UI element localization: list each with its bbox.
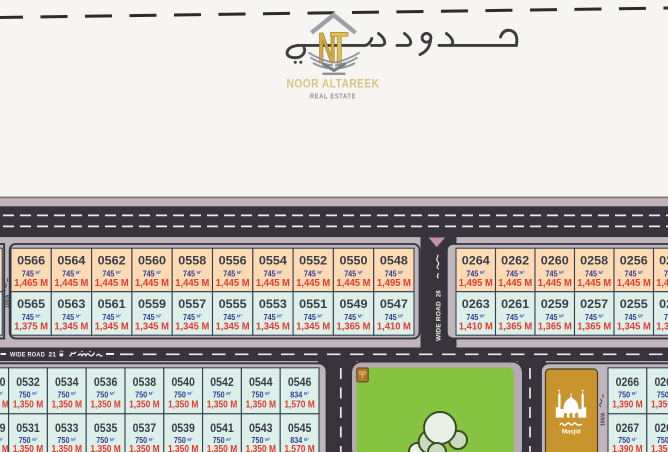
svg-text:0256: 0256	[620, 255, 648, 267]
svg-text:1,345 M: 1,345 M	[95, 321, 129, 332]
svg-text:0562: 0562	[98, 255, 126, 267]
svg-text:0565: 0565	[17, 299, 46, 311]
svg-text:0563: 0563	[57, 299, 85, 311]
svg-text:0554: 0554	[259, 255, 288, 267]
svg-text:0542: 0542	[210, 377, 234, 389]
svg-text:0543: 0543	[249, 423, 273, 435]
svg-text:1,445 M: 1,445 M	[337, 278, 371, 289]
svg-text:0544: 0544	[249, 377, 273, 389]
svg-text:M²: M²	[0, 437, 4, 442]
svg-text:0261: 0261	[501, 299, 530, 311]
svg-text:1,465 M: 1,465 M	[14, 278, 48, 289]
svg-text:0538: 0538	[133, 377, 157, 389]
svg-text:1,375 M: 1,375 M	[14, 321, 48, 332]
svg-text:0262: 0262	[501, 255, 529, 267]
svg-text:M²: M²	[559, 314, 565, 319]
svg-text:0545: 0545	[288, 423, 312, 435]
svg-text:WIDE ROAD: WIDE ROAD	[437, 301, 443, 341]
svg-text:0531: 0531	[16, 423, 40, 435]
svg-text:0558: 0558	[178, 255, 207, 267]
svg-text:0549: 0549	[340, 299, 368, 311]
svg-text:M²: M²	[116, 314, 122, 319]
svg-text:M²: M²	[0, 391, 4, 396]
svg-text:1,345 M: 1,345 M	[256, 321, 290, 332]
svg-text:0267: 0267	[616, 423, 640, 435]
svg-text:0537: 0537	[133, 423, 157, 435]
svg-text:0532: 0532	[16, 377, 40, 389]
svg-text:M²: M²	[32, 437, 38, 442]
svg-text:1,365 M: 1,365 M	[498, 321, 532, 332]
svg-text:0546: 0546	[288, 377, 312, 389]
svg-text:M²: M²	[149, 437, 155, 442]
svg-text:1,445 M: 1,445 M	[95, 278, 129, 289]
svg-text:1,350 M: 1,350 M	[651, 399, 668, 410]
svg-text:1,345 M: 1,345 M	[617, 321, 651, 332]
svg-text:0560: 0560	[138, 255, 166, 267]
svg-text:M²: M²	[237, 270, 243, 275]
svg-text:M²: M²	[35, 314, 41, 319]
svg-text:M²: M²	[197, 270, 203, 275]
svg-text:M²: M²	[520, 270, 526, 275]
svg-text:M²: M²	[156, 270, 162, 275]
svg-text:M²: M²	[116, 270, 122, 275]
svg-text:1,350 M: 1,350 M	[13, 399, 44, 410]
svg-text:1,445 M: 1,445 M	[656, 278, 668, 289]
svg-text:M²: M²	[156, 314, 162, 319]
svg-text:0555: 0555	[219, 299, 248, 311]
svg-text:1,495 M: 1,495 M	[377, 278, 411, 289]
svg-text:0559: 0559	[138, 299, 166, 311]
svg-text:1,390 M: 1,390 M	[612, 444, 643, 452]
svg-text:1,350 M: 1,350 M	[13, 444, 44, 452]
svg-text:M²: M²	[358, 314, 364, 319]
svg-text:M²: M²	[110, 437, 116, 442]
svg-text:1,345 M: 1,345 M	[135, 321, 169, 332]
svg-text:M²: M²	[632, 437, 638, 442]
svg-text:M²: M²	[398, 270, 404, 275]
svg-text:M²: M²	[317, 314, 323, 319]
svg-text:M²: M²	[265, 437, 271, 442]
svg-text:0553: 0553	[259, 299, 287, 311]
svg-text:750: 750	[96, 391, 109, 400]
svg-text:M²: M²	[265, 391, 271, 396]
svg-text:750: 750	[213, 391, 226, 400]
svg-text:M²: M²	[76, 314, 82, 319]
svg-text:M²: M²	[237, 314, 243, 319]
svg-text:1,445 M: 1,445 M	[617, 278, 651, 289]
svg-text:M²: M²	[110, 391, 116, 396]
svg-text:Masjid: Masjid	[562, 430, 581, 436]
svg-text:M²: M²	[71, 391, 77, 396]
svg-text:M²: M²	[71, 437, 77, 442]
svg-text:M²: M²	[76, 270, 82, 275]
svg-text:M²: M²	[480, 270, 486, 275]
svg-text:M²: M²	[187, 437, 193, 442]
svg-text:1,570 M: 1,570 M	[284, 399, 315, 410]
svg-text:0257: 0257	[580, 299, 608, 311]
svg-text:0540: 0540	[171, 377, 195, 389]
svg-text:M²: M²	[638, 314, 644, 319]
svg-text:1,350 M: 1,350 M	[90, 399, 121, 410]
svg-text:0253: 0253	[659, 299, 668, 311]
svg-text:0533: 0533	[55, 423, 79, 435]
svg-text:1,570 M: 1,570 M	[284, 444, 315, 452]
svg-text:0269: 0269	[654, 423, 668, 435]
svg-text:0536: 0536	[94, 377, 118, 389]
svg-text:1,350 M: 1,350 M	[207, 399, 238, 410]
svg-text:1,365 M: 1,365 M	[538, 321, 572, 332]
svg-text:0534: 0534	[55, 377, 79, 389]
svg-text:M²: M²	[599, 314, 605, 319]
svg-text:1,345 M: 1,345 M	[656, 321, 668, 332]
svg-text:M²: M²	[304, 437, 310, 442]
svg-text:0552: 0552	[299, 255, 327, 267]
svg-text:NOOR ALTAREEK: NOOR ALTAREEK	[287, 79, 380, 91]
svg-text:1,350 M: 1,350 M	[90, 444, 121, 452]
svg-text:0264: 0264	[462, 255, 491, 267]
svg-text:1,445 M: 1,445 M	[216, 278, 250, 289]
svg-text:M²: M²	[480, 314, 486, 319]
svg-text:0268: 0268	[654, 377, 668, 389]
svg-text:750: 750	[58, 391, 71, 400]
svg-text:WIDE ROAD: WIDE ROAD	[10, 351, 45, 358]
svg-text:M²: M²	[520, 314, 526, 319]
svg-text:750: 750	[657, 391, 668, 400]
svg-text:1,350 M: 1,350 M	[246, 399, 277, 410]
svg-text:M²: M²	[317, 270, 323, 275]
svg-text:1,345 M: 1,345 M	[296, 321, 330, 332]
svg-text:750: 750	[174, 391, 187, 400]
svg-text:M²: M²	[277, 270, 283, 275]
svg-text:1,350 M: 1,350 M	[207, 444, 238, 452]
svg-text:750: 750	[252, 391, 265, 400]
svg-text:1,350 M: 1,350 M	[129, 444, 160, 452]
svg-text:0266: 0266	[616, 377, 640, 389]
svg-text:1,350 M: 1,350 M	[52, 444, 83, 452]
svg-text:1,410 M: 1,410 M	[459, 321, 493, 332]
svg-text:0255: 0255	[620, 299, 649, 311]
svg-text:1,365 M: 1,365 M	[337, 321, 371, 332]
svg-text:0557: 0557	[178, 299, 206, 311]
svg-text:100/A: 100/A	[5, 294, 11, 308]
svg-text:0556: 0556	[219, 255, 247, 267]
svg-text:M²: M²	[35, 270, 41, 275]
svg-text:750: 750	[618, 391, 631, 400]
svg-text:1,350 M: 1,350 M	[129, 399, 160, 410]
svg-text:1,350 M: 1,350 M	[168, 444, 199, 452]
svg-text:1,445 M: 1,445 M	[135, 278, 169, 289]
svg-text:1,445 M: 1,445 M	[577, 278, 611, 289]
svg-text:1,345 M: 1,345 M	[175, 321, 209, 332]
svg-text:1,445 M: 1,445 M	[54, 278, 88, 289]
svg-text:0254: 0254	[659, 255, 668, 267]
svg-text:26: 26	[437, 290, 443, 297]
svg-text:M²: M²	[149, 391, 155, 396]
svg-text:M²: M²	[197, 314, 203, 319]
svg-text:1,345 M: 1,345 M	[216, 321, 250, 332]
svg-text:1,350 M: 1,350 M	[246, 444, 277, 452]
svg-text:100/A: 100/A	[601, 412, 607, 426]
svg-text:0551: 0551	[299, 299, 328, 311]
svg-text:750: 750	[19, 391, 32, 400]
svg-text:0561: 0561	[98, 299, 127, 311]
svg-text:1,350 M: 1,350 M	[651, 444, 668, 452]
svg-text:1,445 M: 1,445 M	[538, 278, 572, 289]
svg-text:0539: 0539	[171, 423, 195, 435]
svg-text:M²: M²	[277, 314, 283, 319]
svg-text:0258: 0258	[580, 255, 609, 267]
svg-text:M²: M²	[32, 391, 38, 396]
svg-text:1,350 M: 1,350 M	[0, 444, 9, 452]
svg-text:1,495 M: 1,495 M	[459, 278, 493, 289]
svg-text:M²: M²	[398, 314, 404, 319]
svg-text:M²: M²	[304, 391, 310, 396]
svg-text:21: 21	[49, 351, 57, 358]
svg-text:M²: M²	[226, 391, 232, 396]
svg-text:1,390 M: 1,390 M	[612, 399, 643, 410]
svg-text:1,445 M: 1,445 M	[175, 278, 209, 289]
svg-text:M²: M²	[638, 270, 644, 275]
svg-text:0541: 0541	[210, 423, 234, 435]
svg-text:0548: 0548	[380, 255, 409, 267]
svg-text:1,350 M: 1,350 M	[168, 399, 199, 410]
svg-text:0564: 0564	[57, 255, 86, 267]
svg-text:1,345 M: 1,345 M	[54, 321, 88, 332]
svg-text:0259: 0259	[541, 299, 569, 311]
svg-text:M²: M²	[358, 270, 364, 275]
svg-text:1,445 M: 1,445 M	[256, 278, 290, 289]
svg-text:0550: 0550	[340, 255, 368, 267]
svg-text:1,365 M: 1,365 M	[577, 321, 611, 332]
svg-text:M²: M²	[226, 437, 232, 442]
svg-text:750: 750	[135, 391, 148, 400]
svg-text:M²: M²	[632, 391, 638, 396]
svg-text:M²: M²	[187, 391, 193, 396]
svg-text:M²: M²	[559, 270, 565, 275]
svg-text:0530: 0530	[0, 377, 5, 389]
svg-text:1,350 M: 1,350 M	[52, 399, 83, 410]
svg-text:1,410 M: 1,410 M	[377, 321, 411, 332]
svg-text:0535: 0535	[94, 423, 118, 435]
svg-text:0547: 0547	[380, 299, 408, 311]
svg-text:1,350 M: 1,350 M	[0, 399, 9, 410]
svg-text:0263: 0263	[462, 299, 490, 311]
svg-text:M²: M²	[599, 270, 605, 275]
svg-text:1,445 M: 1,445 M	[296, 278, 330, 289]
svg-text:1,445 M: 1,445 M	[498, 278, 532, 289]
svg-text:0529: 0529	[0, 423, 5, 435]
svg-text:0566: 0566	[17, 255, 45, 267]
svg-text:REAL ESTATE: REAL ESTATE	[310, 92, 356, 101]
svg-text:834: 834	[290, 391, 303, 400]
svg-text:0260: 0260	[541, 255, 569, 267]
